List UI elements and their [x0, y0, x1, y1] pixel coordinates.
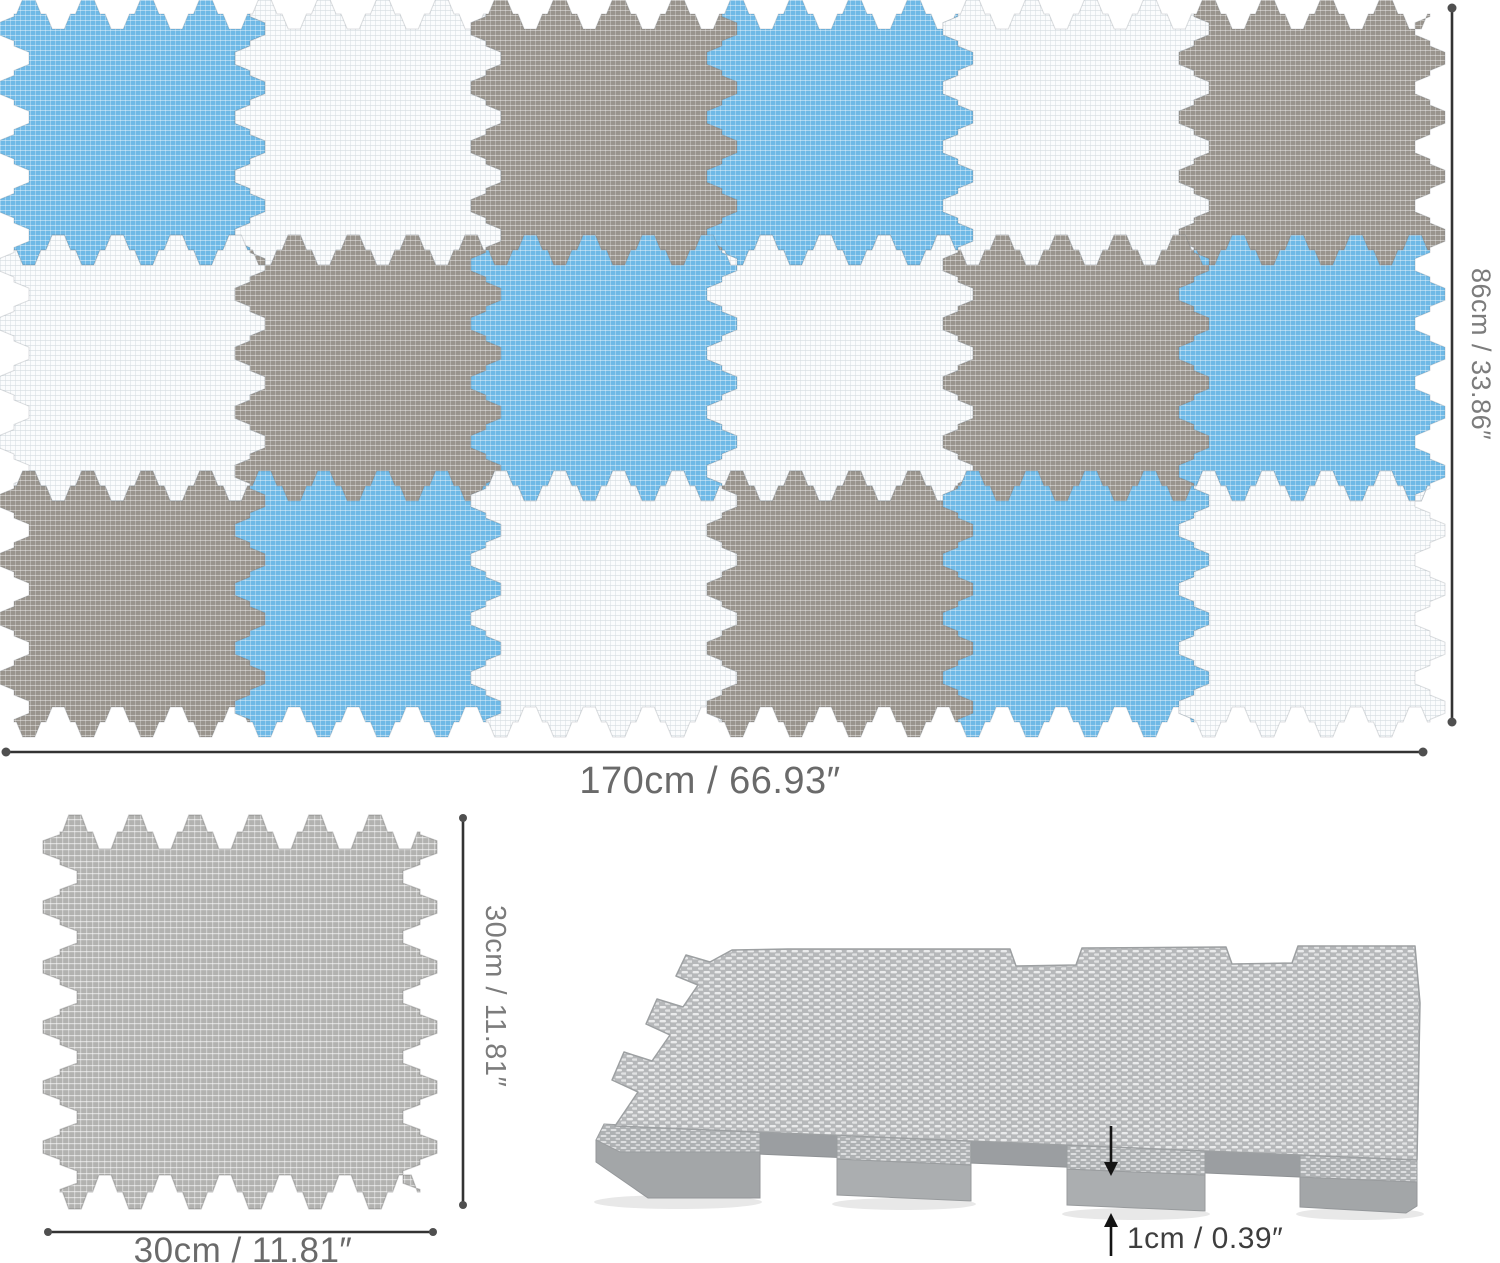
foam-mat-dimension-diagram: 86cm / 33.86″ 170cm / 66.93″ 30cm / 11.8…	[0, 0, 1500, 1263]
tile3d-top-surface	[612, 946, 1420, 1160]
mat-tile-gray	[707, 471, 973, 737]
dimension-endpoint-dot	[2, 748, 11, 757]
mat-tile-blue	[943, 471, 1209, 737]
mat-height-label: 86cm / 33.86″	[1465, 268, 1496, 440]
dimension-endpoint-dot	[1419, 748, 1428, 757]
mat-tile-gray	[1179, 0, 1445, 265]
mat-tile-gray	[943, 235, 1209, 501]
mat-tile-white	[0, 235, 265, 501]
mat-tile-blue	[1179, 235, 1445, 501]
single-tile	[43, 815, 437, 1209]
assembled-mat-illustration	[0, 0, 1460, 748]
mat-tile-gray	[235, 235, 501, 501]
tile-width-label: 30cm / 11.81″	[93, 1231, 393, 1263]
mat-tile-blue	[0, 0, 265, 265]
single-tile-illustration	[20, 795, 475, 1240]
mat-tile-blue	[707, 0, 973, 265]
mat-tile-gray	[0, 471, 265, 737]
mat-tile-white	[235, 0, 501, 265]
thickness-label: 1cm / 0.39″	[1127, 1222, 1283, 1256]
mat-tile-white	[471, 471, 737, 737]
mat-tile-white	[707, 235, 973, 501]
mat-tile-blue	[471, 235, 737, 501]
tile3d-tab-front	[837, 1159, 971, 1201]
mat-tile-blue	[235, 471, 501, 737]
mat-width-label: 170cm / 66.93″	[510, 760, 910, 803]
tile3d-tab-front	[1067, 1169, 1205, 1211]
tile3d-corner-tab-front	[1300, 1177, 1417, 1213]
mat-tile-white	[943, 0, 1209, 265]
tile-height-label: 30cm / 11.81″	[478, 905, 511, 1087]
mat-tile-white	[1179, 471, 1445, 737]
mat-tile-gray	[471, 0, 737, 265]
tile-thickness-3d-illustration	[560, 900, 1450, 1240]
